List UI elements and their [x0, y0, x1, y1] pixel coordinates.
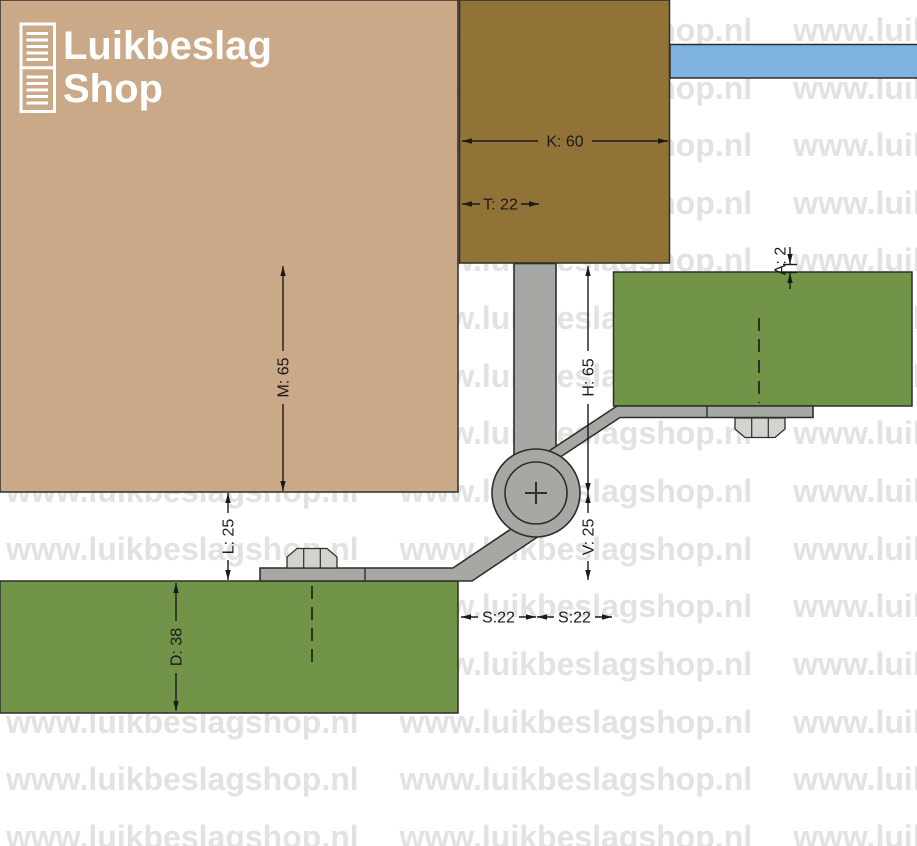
dimension-L-label: L: 25: [221, 519, 238, 555]
logo-text-line2: Shop: [63, 67, 163, 111]
dimension-K-label: K: 60: [546, 134, 583, 151]
dimension-H-label: H: 65: [581, 358, 598, 396]
dimension-A-label: A: 2: [773, 247, 790, 276]
watermark-row: www.luikbeslagshop.nl www.luikbeslagshop…: [5, 761, 917, 797]
dimension-M-label: M: 65: [276, 357, 293, 397]
shutter-open-section: [614, 272, 913, 406]
dimension-S2-label: S:22: [558, 610, 591, 627]
logo-text-line1: Luikbeslag: [63, 24, 272, 68]
carriage-bolt-open: [735, 418, 785, 438]
watermark-row: www.luikbeslagshop.nl www.luikbeslagshop…: [5, 531, 917, 567]
carriage-bolt-closed: [287, 549, 337, 569]
shutter-closed-section: [0, 581, 458, 713]
hinge-frame-strap: [514, 264, 556, 464]
dimension-T-label: T: 22: [483, 197, 518, 214]
dimension-S1-label: S:22: [482, 610, 515, 627]
hinge-knuckle: [492, 449, 580, 537]
watermark-row: www.luikbeslagshop.nl www.luikbeslagshop…: [5, 819, 917, 846]
frame-beam-section: [460, 0, 670, 263]
dimension-V-label: V: 25: [581, 519, 598, 556]
dimension-D-label: D: 38: [169, 628, 186, 666]
diagram-canvas: www.luikbeslagshop.nl www.luikbeslagshop…: [0, 0, 917, 846]
glass-pane-section: [670, 45, 917, 79]
